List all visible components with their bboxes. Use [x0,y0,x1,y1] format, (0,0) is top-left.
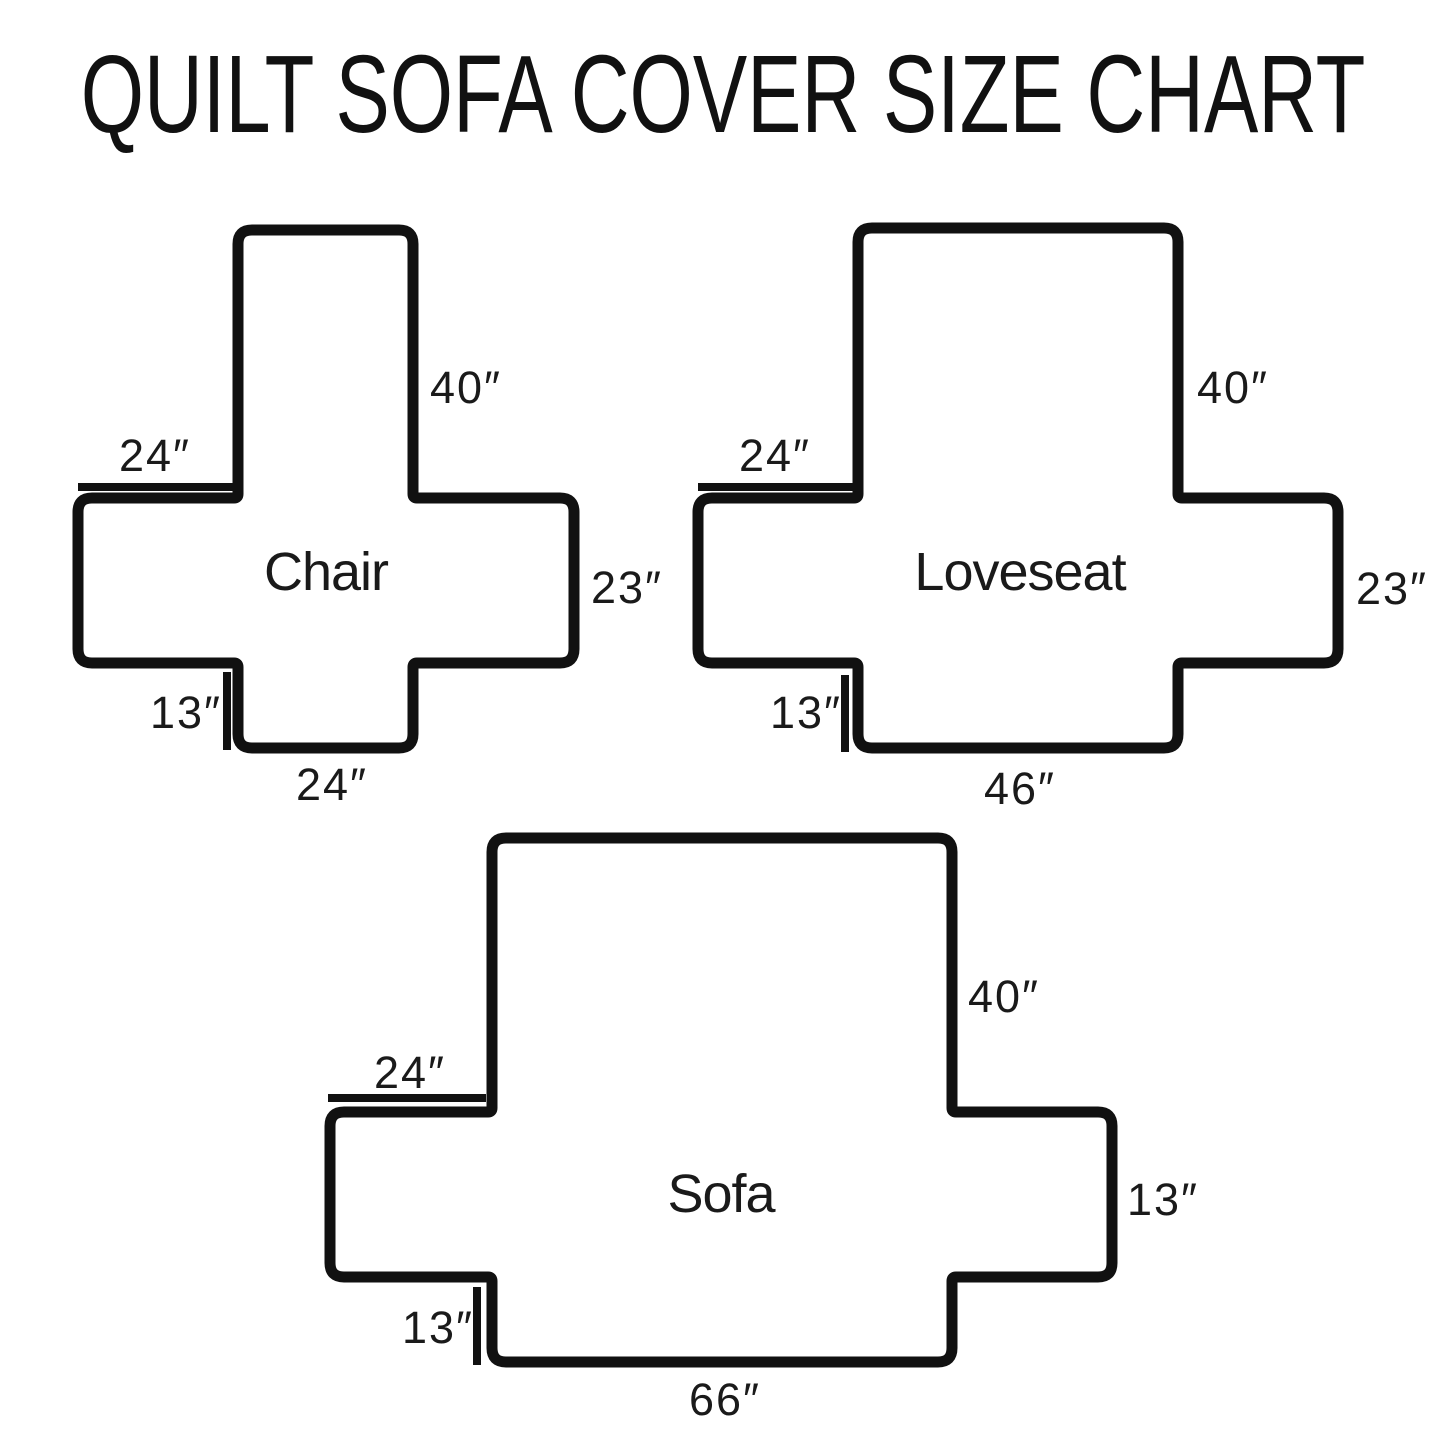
size-chart-page: QUILT SOFA COVER SIZE CHART 40″ 24″ Chai… [0,0,1445,1435]
chair-diagram: 40″ 24″ Chair 23″ 13″ 24″ [78,230,663,810]
chair-arm-width-label: 24″ [119,430,191,481]
chair-seat-width-label: 24″ [296,759,368,810]
sofa-name-label: Sofa [667,1164,776,1224]
sofa-seat-width-label: 66″ [689,1374,761,1425]
loveseat-seat-width-label: 46″ [984,763,1056,814]
chair-name-label: Chair [264,542,389,602]
loveseat-name-label: Loveseat [914,542,1126,602]
loveseat-skirt-height-label: 13″ [770,687,842,738]
loveseat-back-height-label: 40″ [1197,362,1269,413]
sofa-arm-width-label: 24″ [374,1047,446,1098]
sofa-skirt-height-label: 13″ [402,1302,474,1353]
sofa-side-height-label: 13″ [1127,1174,1199,1225]
chair-side-height-label: 23″ [591,562,663,613]
chair-skirt-height-label: 13″ [150,687,222,738]
diagram-canvas: 40″ 24″ Chair 23″ 13″ 24″ 40″ 24″ Lovese… [0,0,1445,1435]
loveseat-side-height-label: 23″ [1356,563,1428,614]
chair-back-height-label: 40″ [430,362,502,413]
loveseat-arm-width-label: 24″ [739,430,811,481]
loveseat-diagram: 40″ 24″ Loveseat 23″ 13″ 46″ [698,228,1428,814]
sofa-back-height-label: 40″ [968,971,1040,1022]
sofa-diagram: 40″ 24″ Sofa 13″ 13″ 66″ [328,838,1199,1425]
